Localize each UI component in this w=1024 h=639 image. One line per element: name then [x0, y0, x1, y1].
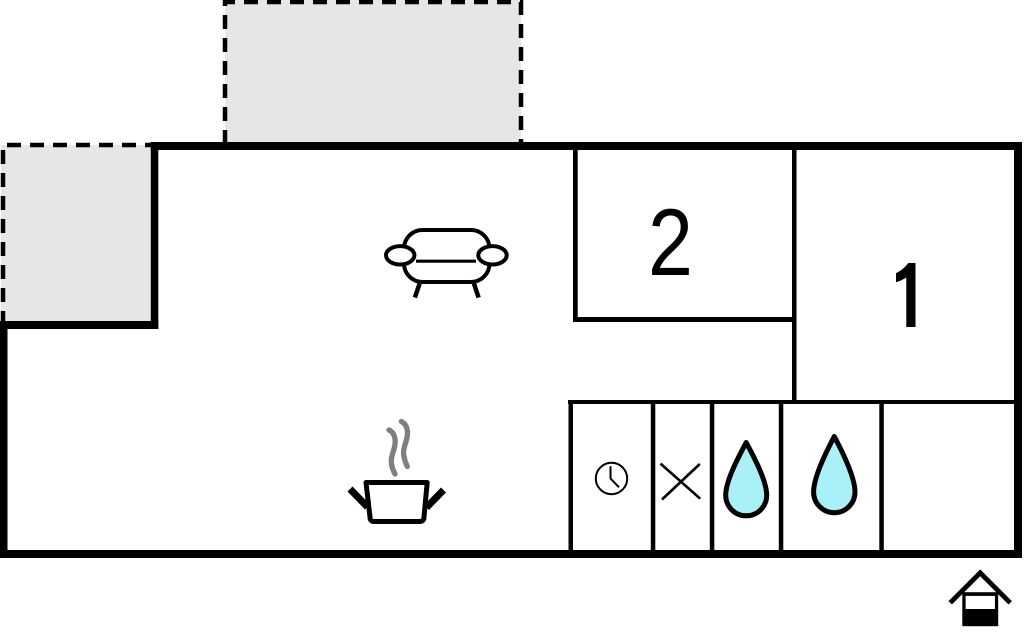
svg-text:2: 2: [648, 189, 693, 296]
